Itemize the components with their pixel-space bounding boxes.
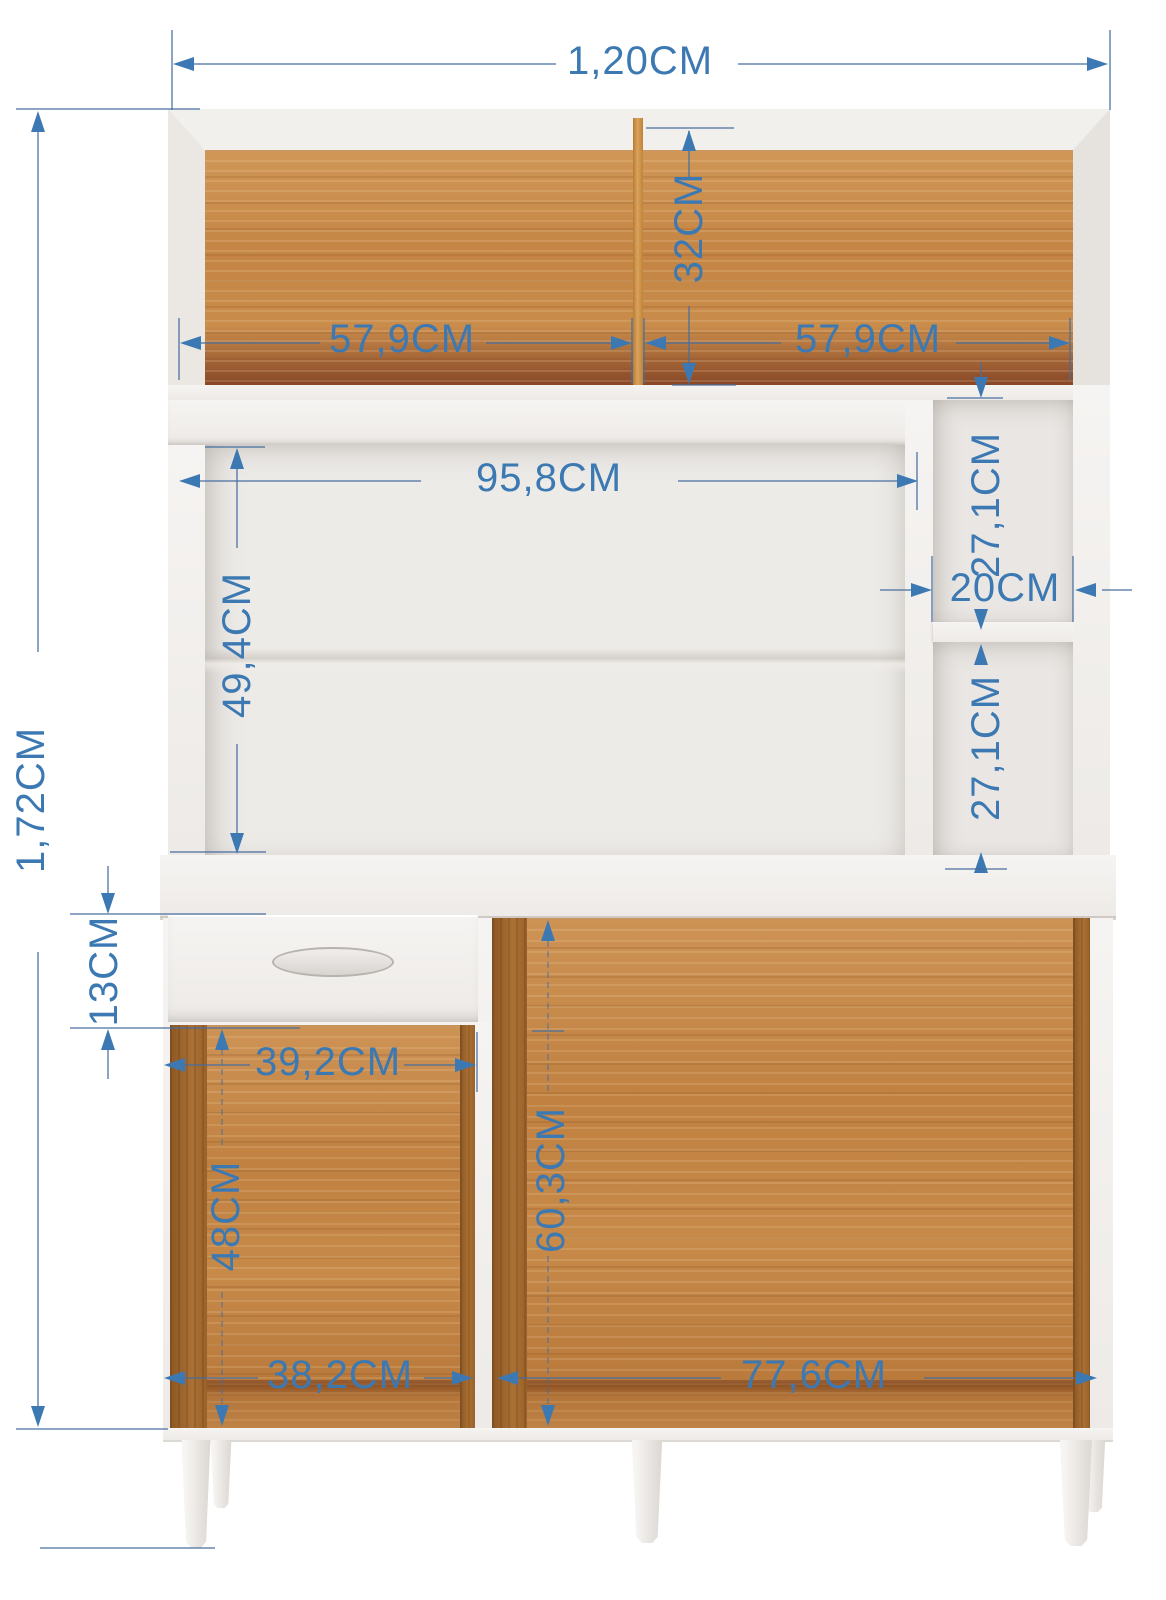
dim-ext-line: [1109, 30, 1111, 110]
dim-label-middle-opening-height: 49,4CM: [217, 572, 257, 718]
dim-arrowhead: [974, 377, 988, 398]
left-opening-right-wall: [460, 1025, 475, 1428]
dim-ext-line: [945, 868, 1007, 870]
dim-label-left-opening-bottom-width: 38,2CM: [267, 1355, 413, 1395]
dim-ext-line: [16, 108, 200, 110]
cabinet-dimension-diagram: 1,20CM 1,72CM 32CM 57,9CM 57,9CM 95,8CM …: [0, 0, 1166, 1600]
dim-ext-line: [70, 1027, 300, 1029]
dim-line: [221, 1049, 223, 1145]
base-bottom-board: [163, 1428, 1113, 1442]
middle-shelf-line: [205, 648, 905, 674]
dim-arrowhead: [682, 130, 696, 151]
dim-ext-line: [40, 1547, 215, 1549]
dim-arrowhead: [215, 1029, 229, 1050]
dim-label-cubby-bottom-height: 27,1CM: [966, 675, 1006, 821]
dim-ext-line: [646, 127, 734, 129]
dim-ext-line: [643, 318, 645, 384]
dim-arrowhead: [455, 1058, 476, 1072]
dim-ext-line: [476, 1032, 478, 1092]
dim-line: [37, 114, 39, 652]
dim-label-right-opening-height: 60,3CM: [531, 1107, 571, 1253]
dim-arrowhead: [541, 920, 555, 941]
dim-line: [37, 952, 39, 1424]
dim-label-cubby-width: 20CM: [950, 568, 1061, 608]
dim-label-right-opening-width: 77,6CM: [741, 1355, 887, 1395]
middle-divider-wall: [905, 400, 933, 855]
dim-label-left-opening-top-width: 39,2CM: [255, 1042, 401, 1082]
dim-arrowhead: [101, 893, 115, 914]
dim-line: [547, 941, 549, 1091]
dim-ext-line: [1072, 556, 1074, 622]
dim-arrowhead: [1075, 583, 1096, 597]
dim-arrowhead: [180, 336, 201, 350]
dim-arrowhead: [101, 1029, 115, 1050]
dim-label-middle-opening-width: 95,8CM: [476, 458, 622, 498]
dim-ext-line: [631, 318, 633, 384]
cabinet-leg-left-front: [178, 1440, 214, 1548]
right-stile: [1073, 385, 1110, 855]
dim-line: [184, 1377, 258, 1379]
dim-arrowhead: [31, 1406, 45, 1427]
dim-arrowhead: [230, 448, 244, 469]
dim-arrowhead: [682, 363, 696, 384]
dim-arrowhead: [974, 609, 988, 630]
dim-line: [236, 744, 238, 842]
cubby-shelf: [933, 622, 1073, 642]
dim-line: [107, 866, 109, 894]
dim-line: [1102, 589, 1132, 591]
dim-line: [236, 466, 238, 548]
dim-ext-line: [672, 384, 736, 386]
dim-arrowhead: [497, 1371, 518, 1385]
dim-arrowhead: [452, 1371, 473, 1385]
dim-line: [517, 1377, 721, 1379]
dim-arrowhead: [897, 474, 918, 488]
cabinet-leg-middle: [628, 1440, 666, 1543]
dim-line: [486, 342, 616, 344]
right-opening-side-wall: [492, 918, 527, 1428]
hutch-center-divider: [633, 118, 643, 385]
dim-arrowhead: [911, 583, 932, 597]
dim-label-left-opening-height: 48CM: [206, 1161, 246, 1272]
dim-arrowhead: [230, 833, 244, 854]
dim-line: [663, 342, 781, 344]
dim-label-overall-height: 1,72CM: [11, 727, 51, 873]
dim-arrowhead: [164, 1058, 185, 1072]
dim-arrowhead: [611, 336, 632, 350]
dim-arrowhead: [215, 1405, 229, 1426]
dim-arrowhead: [1049, 336, 1070, 350]
dim-label-overall-width: 1,20CM: [567, 41, 713, 81]
dim-line: [184, 1064, 250, 1066]
dim-label-drawer-height: 13CM: [84, 916, 124, 1027]
middle-header-board: [168, 400, 933, 445]
dim-arrowhead: [1076, 1371, 1097, 1385]
dim-line: [183, 480, 421, 482]
dim-line: [880, 589, 912, 591]
dim-arrowhead: [1087, 57, 1108, 71]
dim-label-hutch-right-width: 57,9CM: [795, 319, 941, 359]
right-opening-right-wall: [1073, 918, 1090, 1428]
dim-label-hutch-left-width: 57,9CM: [329, 319, 475, 359]
dim-ext-line: [16, 1428, 168, 1430]
dim-label-hutch-back-height: 32CM: [669, 173, 709, 284]
dim-arrowhead: [173, 57, 194, 71]
dim-arrowhead: [645, 336, 666, 350]
dim-line: [678, 480, 914, 482]
dim-line: [547, 1256, 549, 1404]
middle-left-stile: [168, 445, 205, 855]
dim-line: [107, 1049, 109, 1079]
dim-ext-line: [532, 1030, 564, 1032]
dim-arrowhead: [164, 1371, 185, 1385]
cabinet-leg-left-back: [208, 1440, 234, 1508]
dim-line: [186, 63, 556, 65]
dim-ext-line: [170, 851, 266, 853]
base-right-edge: [1090, 918, 1113, 1438]
dim-line: [924, 1377, 1094, 1379]
left-opening-side-wall: [170, 1025, 207, 1428]
dim-line: [184, 342, 320, 344]
dim-line: [738, 63, 1104, 65]
counter-top: [160, 855, 1116, 920]
right-opening-back-panel: [527, 918, 1073, 1380]
dim-label-cubby-top-height: 27,1CM: [966, 432, 1006, 578]
dim-arrowhead: [31, 111, 45, 132]
dim-arrowhead: [541, 1405, 555, 1426]
dim-line: [221, 1292, 223, 1404]
dim-arrowhead: [179, 474, 200, 488]
drawer-handle: [272, 947, 394, 977]
dim-arrowhead: [974, 644, 988, 665]
